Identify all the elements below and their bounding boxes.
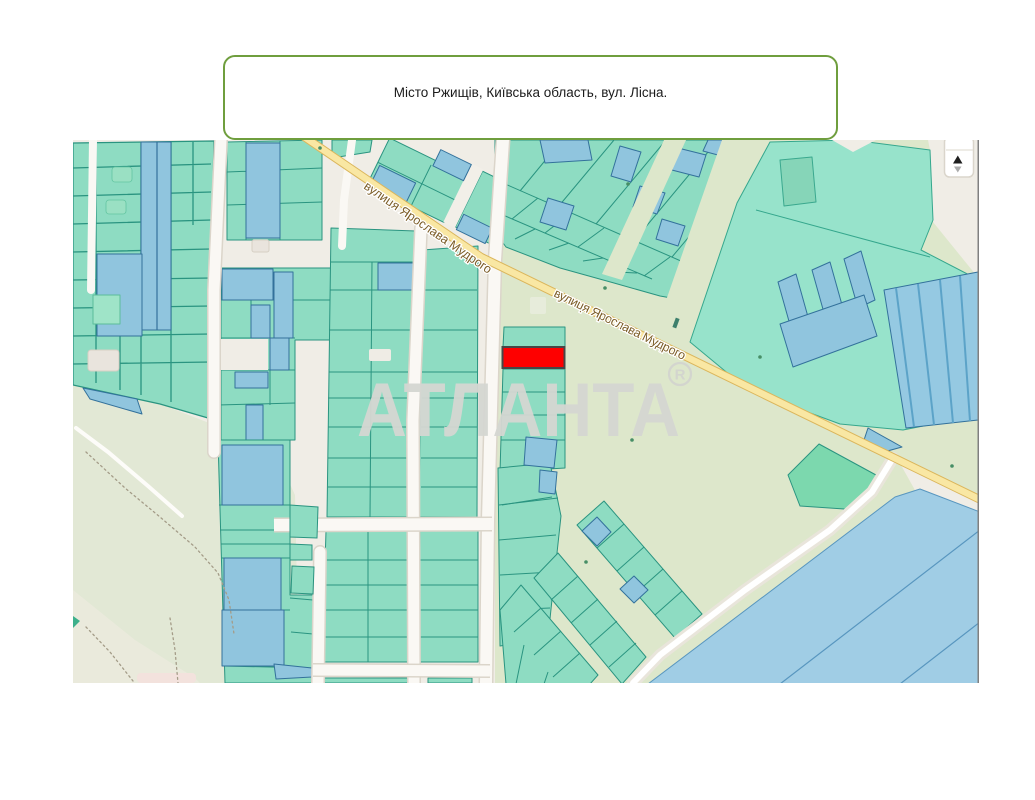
svg-text:R: R [675,367,686,384]
svg-text:АТЛАНТА: АТЛАНТА [357,368,680,453]
